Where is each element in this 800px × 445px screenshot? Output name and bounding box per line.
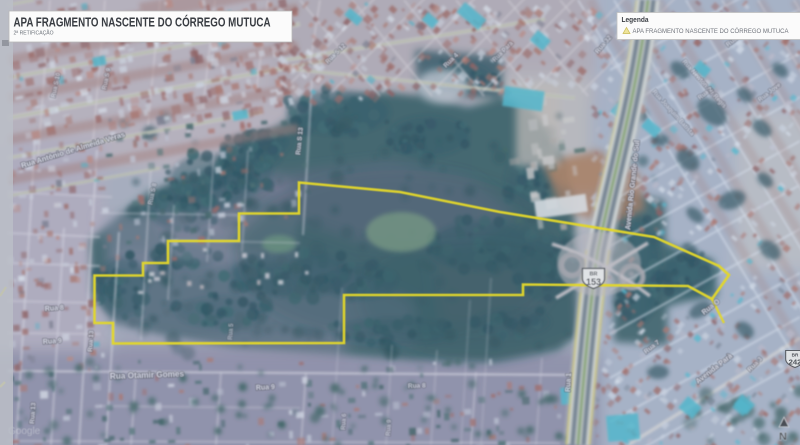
svg-text:2ª RETIFICAÇÃO: 2ª RETIFICAÇÃO <box>14 30 54 37</box>
svg-text:APA FRAGMENTO NASCENTE DO CÓRR: APA FRAGMENTO NASCENTE DO CÓRREGO MUTUCA <box>633 26 790 35</box>
svg-text:Legenda: Legenda <box>622 15 650 24</box>
svg-text:APA FRAGMENTO NASCENTE DO CÓRR: APA FRAGMENTO NASCENTE DO CÓRREGO MUTUCA <box>14 15 271 30</box>
